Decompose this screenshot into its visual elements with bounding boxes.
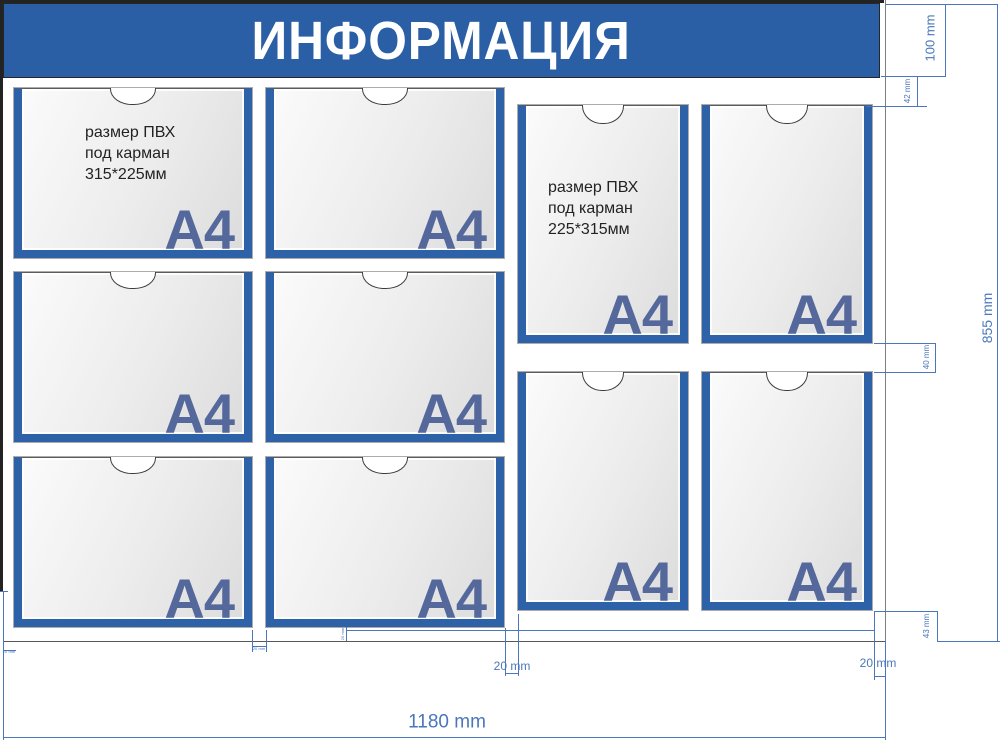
a4-size-label: A4 — [786, 287, 856, 343]
a4-size-label: A4 — [786, 554, 856, 610]
pocket-notch-icon — [362, 457, 408, 474]
information-stand-drawing: ИНФОРМАЦИЯ размер ПВХ под карман 315*225… — [0, 0, 1000, 740]
pocket-a4-landscape-6: A4 — [266, 457, 504, 627]
dimension-label-gap-landscape-columns: 20 mm — [253, 647, 265, 651]
a4-size-label: A4 — [416, 386, 486, 442]
dimension-label-gap-portrait-rows: 40 mm — [923, 345, 931, 369]
pocket-a4-portrait-2: A4 — [702, 105, 872, 343]
a4-size-label: A4 — [416, 571, 486, 627]
dimension-line — [346, 630, 874, 631]
pocket-notch-icon — [362, 88, 408, 105]
dimension-line — [886, 4, 997, 5]
pocket-notch-icon — [766, 105, 808, 124]
dimension-label-board-width: 1180 mm — [408, 713, 486, 732]
pocket-a4-portrait-3: A4 — [518, 372, 688, 610]
board-bottom-edge — [3, 641, 886, 642]
dimension-line — [3, 592, 4, 740]
dimension-label-margin-left: 20 mm — [3, 650, 15, 654]
board-title: ИНФОРМАЦИЯ — [252, 14, 631, 68]
dimension-line — [874, 611, 938, 612]
dimension-label-board-height: 855 mm — [980, 293, 994, 344]
dimension-line — [3, 737, 886, 738]
dimension-line — [505, 673, 518, 674]
dimension-line — [935, 343, 936, 372]
pocket-notch-icon — [110, 272, 156, 289]
dimension-line — [866, 106, 927, 107]
pocket-size-note-landscape: размер ПВХ под карман 315*225мм — [85, 123, 175, 185]
dimension-line — [917, 76, 918, 106]
dimension-line — [937, 611, 938, 641]
pocket-a4-landscape-4: A4 — [266, 272, 504, 442]
board-left-edge — [0, 0, 3, 592]
a4-size-label: A4 — [416, 202, 486, 258]
pocket-notch-icon — [110, 457, 156, 474]
dimension-line — [0, 591, 8, 592]
pocket-notch-icon — [582, 105, 624, 124]
dimension-label-gap-header: 42 mm — [904, 79, 912, 103]
pocket-notch-icon — [582, 372, 624, 391]
dimension-line — [997, 4, 998, 641]
pocket-a4-landscape-3: A4 — [14, 272, 252, 442]
pocket-size-note-portrait: размер ПВХ под карман 225*315мм — [548, 178, 638, 240]
pocket-notch-icon — [110, 88, 156, 105]
board-header: ИНФОРМАЦИЯ — [3, 3, 880, 78]
dimension-line — [266, 630, 267, 652]
dimension-line — [945, 4, 946, 76]
pocket-a4-landscape-1: размер ПВХ под карман 315*225мм A4 — [14, 88, 252, 258]
dimension-line — [937, 641, 1000, 642]
a4-size-label: A4 — [164, 386, 234, 442]
dimension-line — [874, 372, 936, 373]
dimension-line — [881, 76, 946, 77]
a4-size-label: A4 — [164, 202, 234, 258]
pocket-notch-icon — [766, 372, 808, 391]
dimension-label-gap-bottom-right: 43 mm — [923, 614, 931, 638]
a4-size-label: A4 — [602, 554, 672, 610]
pocket-a4-portrait-4: A4 — [702, 372, 872, 610]
dimension-line — [874, 676, 886, 677]
dimension-label-gap-bottom-left: 20 mm — [341, 628, 345, 640]
pocket-notch-icon — [362, 272, 408, 289]
dimension-label-gap-mid-columns: 20 mm — [494, 660, 531, 672]
a4-size-label: A4 — [164, 571, 234, 627]
pocket-a4-landscape-5: A4 — [14, 457, 252, 627]
a4-size-label: A4 — [602, 287, 672, 343]
pocket-a4-landscape-2: A4 — [266, 88, 504, 258]
dimension-label-margin-right: 20 mm — [860, 657, 897, 669]
board-right-edge — [885, 0, 886, 641]
dimension-label-header-height: 100 mm — [924, 15, 937, 62]
pocket-a4-portrait-1: размер ПВХ под карман 225*315мм A4 — [518, 105, 688, 343]
